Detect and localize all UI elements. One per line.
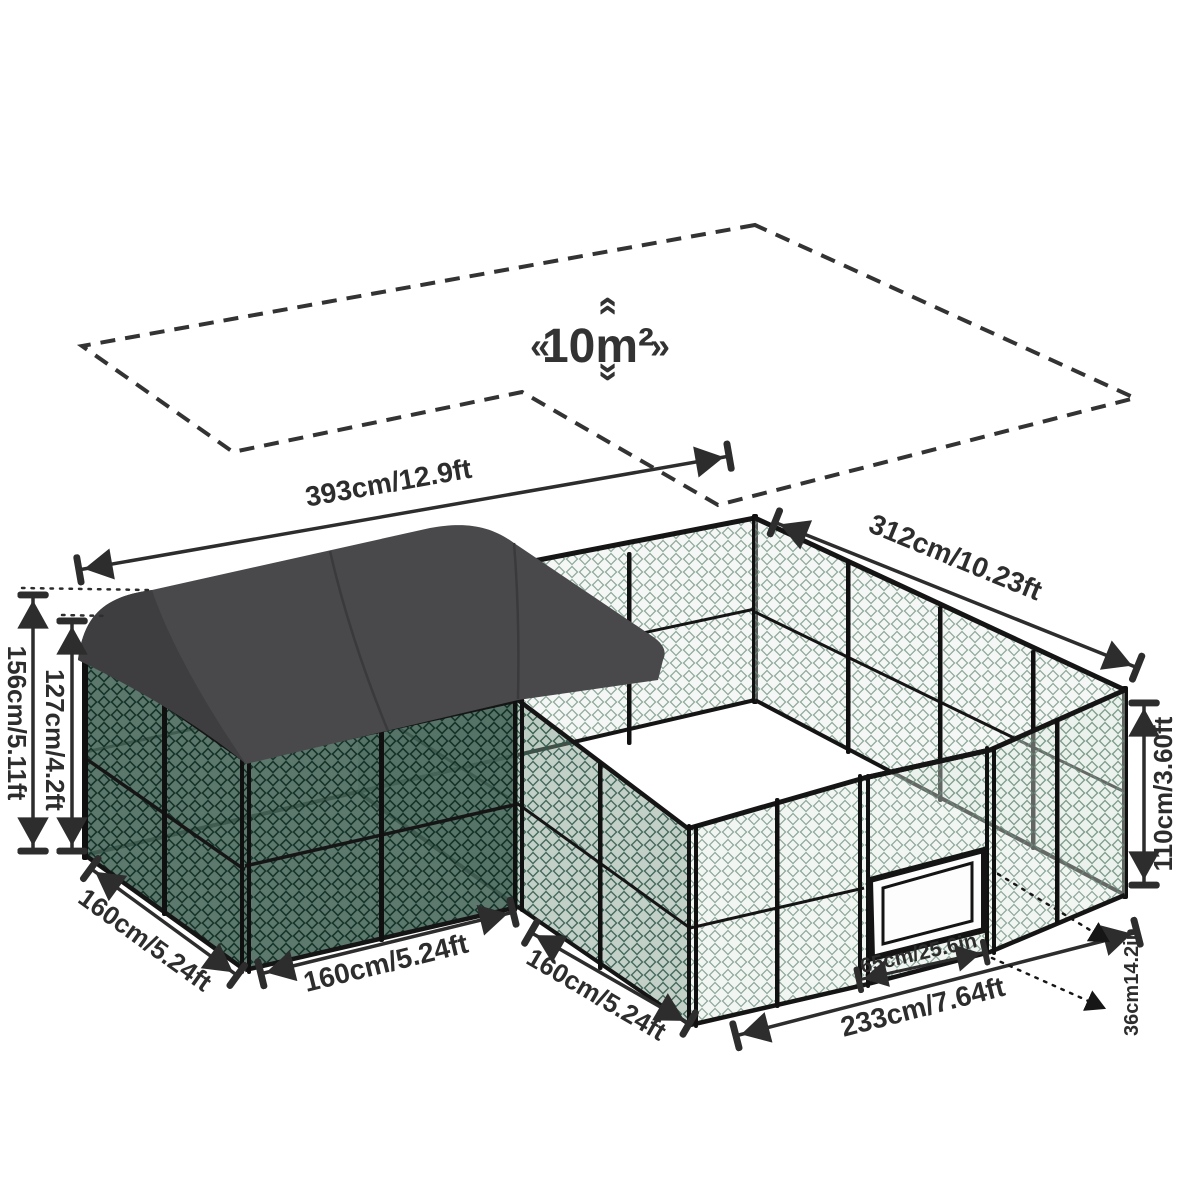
dim-label-eave-height: 127cm/4.2ft: [40, 669, 70, 811]
footprint-annotation: 10m² « » « »: [82, 225, 1135, 505]
area-chevron-right: »: [650, 325, 670, 366]
dim-label-peak-height: 156cm/5.11ft: [2, 646, 32, 801]
kennel-dimension-diagram: 10m² « » « » 393cm/12.9ft 312cm/: [0, 0, 1200, 1200]
product-diagram-canvas: 10m² « » « » 393cm/12.9ft 312cm/: [0, 0, 1200, 1200]
fence-post: [598, 762, 603, 970]
fence-post: [1055, 718, 1060, 924]
leader-door-offset-bottom: [992, 958, 1104, 1008]
area-chevron-down: »: [590, 362, 631, 382]
fence-post: [162, 702, 167, 916]
fence-post-double: [247, 756, 251, 974]
area-chevron-left: «: [530, 325, 550, 366]
fence-post: [775, 798, 780, 1008]
fence-post-west-corner: [82, 644, 88, 860]
fence-post-double: [687, 824, 691, 1028]
fence-post: [379, 728, 384, 942]
dim-label-door-offset: 36cm14.2in: [1121, 928, 1143, 1036]
fence-post-double: [240, 756, 244, 974]
fence-post-double: [694, 824, 698, 1028]
area-chevron-up: «: [590, 296, 631, 316]
leader-eave-dotted: [62, 615, 108, 616]
fence-post-double: [513, 696, 517, 912]
fence-post-double: [520, 696, 524, 912]
fence-post: [846, 560, 851, 754]
leader-peak-dotted: [22, 588, 148, 590]
door-post-right: [992, 746, 996, 955]
dim-label-wall-height: 110cm/3.60ft: [1148, 716, 1178, 871]
